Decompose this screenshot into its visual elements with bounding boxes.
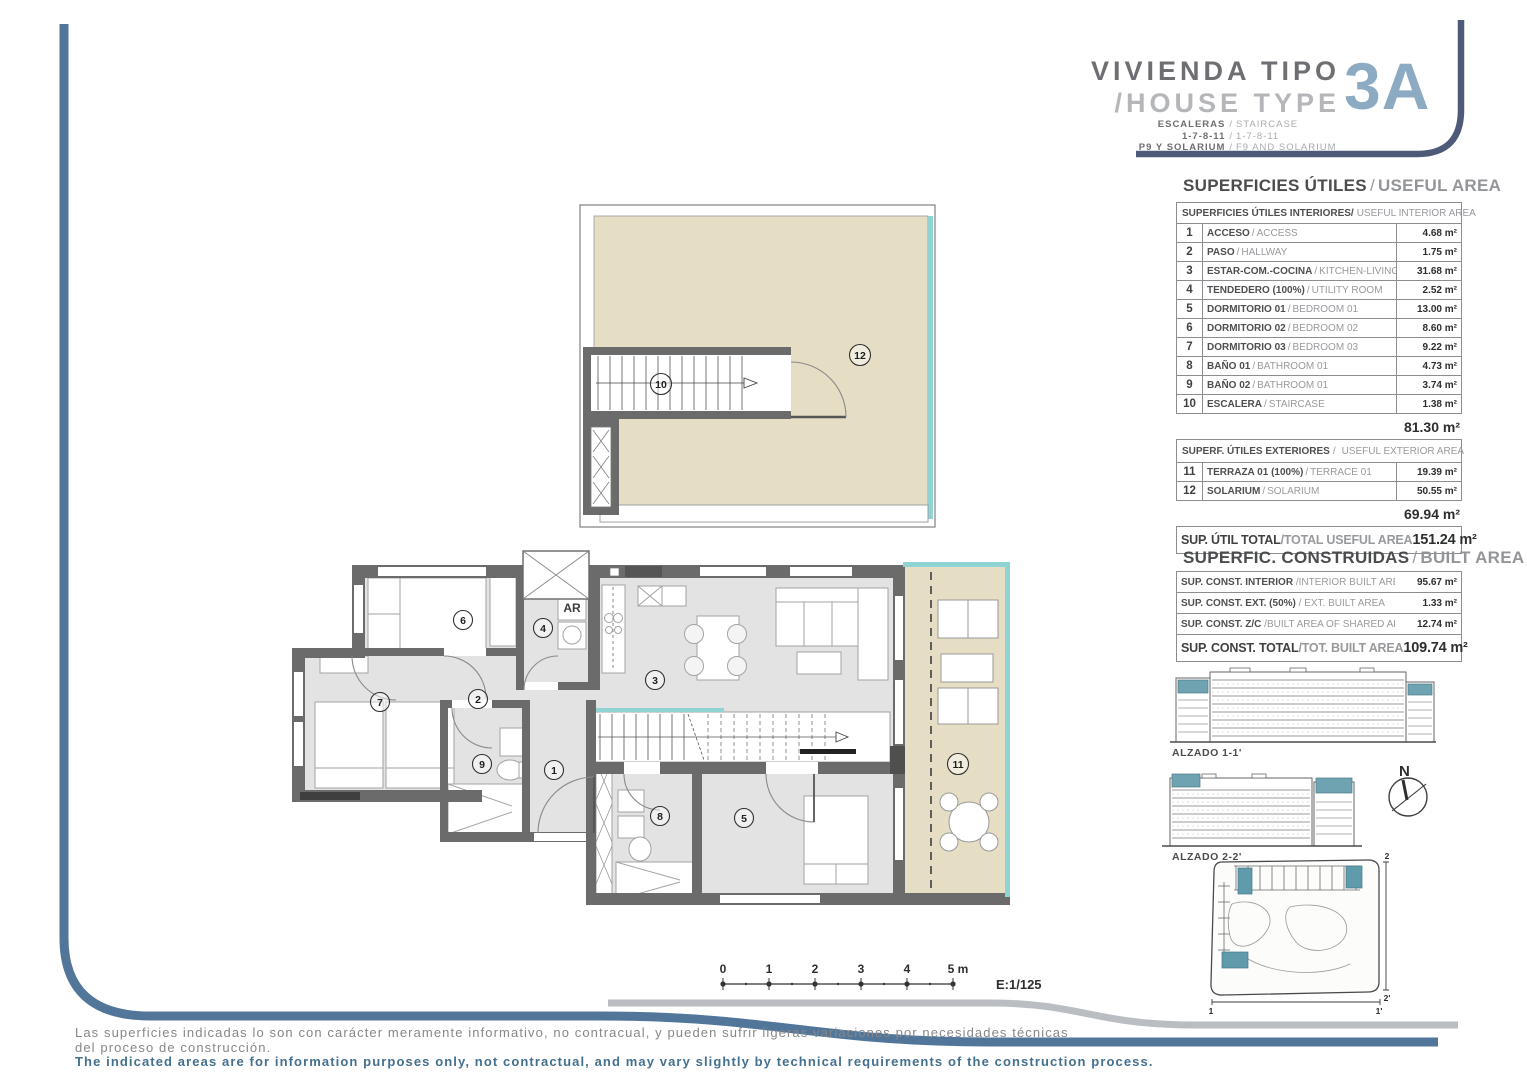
useful-area-table: SUPERFICIES ÚTILES INTERIORES/ USEFUL IN… (1176, 202, 1462, 554)
scale-tick-2: 2 (812, 962, 819, 976)
svg-text:2: 2 (475, 694, 481, 706)
table-row: 5DORMITORIO 01/BEDROOM 0113.00 m² (1177, 300, 1461, 319)
elevation-2-label: ALZADO 2-2' (1172, 851, 1242, 863)
site-marker-right: 1' (1376, 1006, 1383, 1016)
staircase-row: P9 Y SOLARIUM/F9 AND SOLARIUM (1080, 142, 1340, 154)
title-en: /HOUSE TYPE (960, 88, 1340, 119)
plan-sheet: AR 1 2 3 4 5 6 7 8 9 10 11 12 (0, 0, 1527, 1080)
svg-text:12: 12 (854, 350, 866, 362)
scale-tick-3: 3 (858, 962, 865, 976)
table-row: 9BAÑO 02/BATHROOM 013.74 m² (1177, 376, 1461, 395)
table-row: 6DORMITORIO 02/BEDROOM 028.60 m² (1177, 319, 1461, 338)
built-area-title: SUPERFIC. CONSTRUIDAS/BUILT AREA (1183, 548, 1524, 568)
table-row: SUP. CONST. EXT. (50%) / EXT. BUILT AREA… (1176, 592, 1462, 614)
table-row: 12SOLARIUM/SOLARIUM50.55 m² (1177, 482, 1461, 500)
solarium-shaft (583, 419, 619, 515)
north-compass: N (1389, 763, 1427, 816)
svg-text:9: 9 (479, 759, 485, 771)
exterior-area-header: SUPERF. ÚTILES EXTERIORES/ USEFUL EXTERI… (1176, 439, 1462, 463)
svg-text:11: 11 (952, 759, 963, 771)
svg-text:8: 8 (657, 811, 663, 823)
elevation-2-2: ALZADO 2-2' (1162, 774, 1362, 863)
interior-staircase (594, 708, 890, 762)
room-label-4: 4 (534, 619, 553, 638)
table-row: 7DORMITORIO 03/BEDROOM 039.22 m² (1177, 338, 1461, 357)
table-row: 3ESTAR-COM.-COCINA/KITCHEN-LIVING31.68 m… (1177, 262, 1461, 281)
svg-text:4: 4 (540, 623, 546, 635)
scale-tick-1: 1 (766, 962, 773, 976)
table-row: 1ACCESO/ACCESS4.68 m² (1177, 224, 1461, 243)
room-label-8: 8 (651, 807, 670, 826)
scale-ratio: E:1/125 (996, 977, 1042, 992)
svg-text:3: 3 (652, 675, 658, 687)
scale-bar: 0 1 2 3 4 5 m E:1/125 (720, 962, 1042, 992)
table-row: 2PASO/HALLWAY1.75 m² (1177, 243, 1461, 262)
site-marker-top: 2 (1385, 851, 1390, 861)
elevation-1-label: ALZADO 1-1' (1172, 747, 1242, 759)
scale-tick-5: 5 m (948, 962, 969, 976)
scale-tick-4: 4 (904, 962, 911, 976)
room-label-1: 1 (545, 761, 564, 780)
built-area-table: SUP. CONST. INTERIOR /INTERIOR BUILT ARE… (1176, 572, 1462, 662)
room-label-10: 10 (651, 374, 672, 395)
utility-ar-label: AR (563, 601, 581, 615)
room-label-6: 6 (454, 611, 473, 630)
useful-area-title: SUPERFICIES ÚTILES/USEFUL AREA (1183, 176, 1501, 196)
title-staircase-block: ESCALERAS/STAIRCASE 1-7-8-11/1-7-8-11 P9… (1080, 119, 1340, 154)
staircase-row: ESCALERAS/STAIRCASE (1080, 119, 1340, 131)
svg-text:1: 1 (551, 765, 557, 777)
built-total: SUP. CONST. TOTAL/TOT. BUILT AREA 109.74… (1176, 634, 1462, 662)
elevation-1-1: ALZADO 1-1' (1170, 668, 1436, 759)
svg-text:5: 5 (741, 813, 747, 825)
staircase-row: 1-7-8-11/1-7-8-11 (1080, 131, 1340, 143)
table-row: SUP. CONST. Z/C /BUILT AREA OF SHARED AR… (1176, 613, 1462, 635)
site-marker-bottom: 2' (1384, 993, 1391, 1003)
title-es: VIVIENDA TIPO (960, 56, 1340, 87)
exterior-subtotal: 69.94 m² (1176, 501, 1462, 526)
scale-tick-0: 0 (720, 962, 727, 976)
exterior-area-rows: 11TERRAZA 01 (100%)/TERRACE 0119.39 m² 1… (1176, 463, 1462, 501)
room-label-2: 2 (469, 690, 488, 709)
svg-text:7: 7 (377, 697, 383, 709)
interior-area-rows: 1ACCESO/ACCESS4.68 m² 2PASO/HALLWAY1.75 … (1176, 224, 1462, 414)
house-type-code: 3A (1344, 48, 1444, 124)
disclaimer: Las superficies indicadas lo son con car… (75, 1026, 1475, 1070)
room-label-5: 5 (735, 809, 754, 828)
room-label-11: 11 (948, 754, 969, 775)
table-row: 10ESCALERA/STAIRCASE1.38 m² (1177, 395, 1461, 413)
room-label-12: 12 (850, 345, 871, 366)
disclaimer-en: The indicated areas are for information … (75, 1055, 1475, 1070)
terrace (903, 562, 1010, 897)
room-label-9: 9 (473, 755, 492, 774)
interior-area-header: SUPERFICIES ÚTILES INTERIORES/ USEFUL IN… (1176, 202, 1462, 224)
svg-text:6: 6 (460, 615, 466, 627)
table-row: 11TERRAZA 01 (100%)/TERRACE 0119.39 m² (1177, 463, 1461, 482)
room-label-3: 3 (646, 671, 665, 690)
disclaimer-es-line2: del proceso de construcción. (75, 1041, 1475, 1056)
site-marker-left: 1 (1209, 1006, 1214, 1016)
disclaimer-es-line1: Las superficies indicadas lo son con car… (75, 1026, 1475, 1041)
solarium-plan (580, 205, 935, 527)
table-row: SUP. CONST. INTERIOR /INTERIOR BUILT ARE… (1176, 571, 1462, 593)
main-floor-plan: AR (292, 551, 1010, 905)
room-label-7: 7 (371, 693, 390, 712)
table-row: 4TENDEDERO (100%)/UTILITY ROOM2.52 m² (1177, 281, 1461, 300)
svg-text:10: 10 (655, 379, 667, 391)
interior-subtotal: 81.30 m² (1176, 414, 1462, 439)
table-row: 8BAÑO 01/BATHROOM 014.73 m² (1177, 357, 1461, 376)
site-plan: 2 2' 1 1' (1209, 851, 1391, 1016)
